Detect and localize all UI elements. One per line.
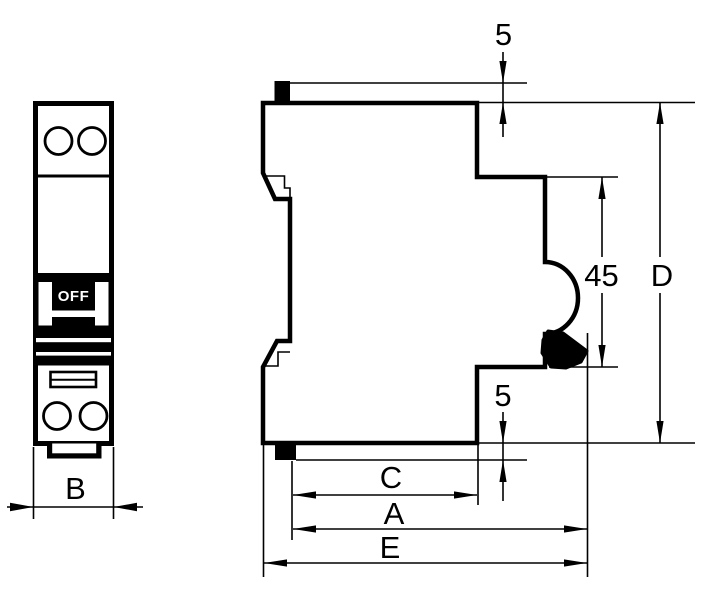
b-arrowhead-left: [10, 503, 34, 511]
side-top-tab: [275, 81, 291, 103]
dimension-label-c: C: [380, 460, 402, 495]
terminal-screw-top-right: [79, 128, 106, 155]
dimension-label-a: A: [384, 496, 405, 531]
top-5-arrowhead-down: [499, 61, 506, 83]
side-bottom-tab: [275, 443, 296, 460]
dim-c-arrowhead-right: [454, 491, 477, 498]
dim-d-arrowhead-down: [656, 421, 663, 443]
toggle-slot-left: [39, 282, 53, 326]
dim-a-arrowhead-left: [293, 525, 316, 532]
toggle-stripe-line-2: [36, 352, 111, 356]
terminal-screw-bottom-right: [80, 403, 107, 430]
b-arrowhead-right: [114, 503, 138, 511]
drawing-svg: OFF B: [0, 0, 714, 614]
terminal-screw-top-left: [45, 128, 72, 155]
dim-45-arrowhead-down: [598, 345, 605, 367]
dim-e-arrowhead-right: [564, 559, 587, 566]
dim-e-arrowhead-left: [264, 559, 287, 566]
dimension-label-e: E: [380, 530, 401, 565]
dimension-label-bottom-5: 5: [494, 378, 511, 413]
toggle-knob-bottom-line: [52, 311, 95, 318]
toggle-slot-right: [95, 282, 109, 326]
dimension-drawing: OFF B: [0, 0, 714, 614]
dimension-label-d: D: [651, 258, 673, 293]
bottom-5-arrowhead-down: [499, 421, 506, 443]
dimension-label-45: 45: [584, 258, 618, 293]
dimension-label-top-5: 5: [495, 17, 512, 52]
side-body-outline: [263, 103, 578, 443]
front-view: OFF B: [7, 104, 143, 520]
toggle-off-label: OFF: [58, 288, 90, 305]
dimension-label-b: B: [65, 471, 86, 506]
terminal-screw-bottom-left: [44, 403, 71, 430]
dim-a-arrowhead-right: [564, 525, 587, 532]
toggle-stripe-line-1: [36, 338, 111, 342]
front-bottom-tab-inner: [52, 444, 96, 454]
side-view: 5 45 D 5 C A E: [263, 17, 695, 577]
din-rail-clip: [542, 331, 587, 368]
dim-c-arrowhead-left: [293, 491, 316, 498]
